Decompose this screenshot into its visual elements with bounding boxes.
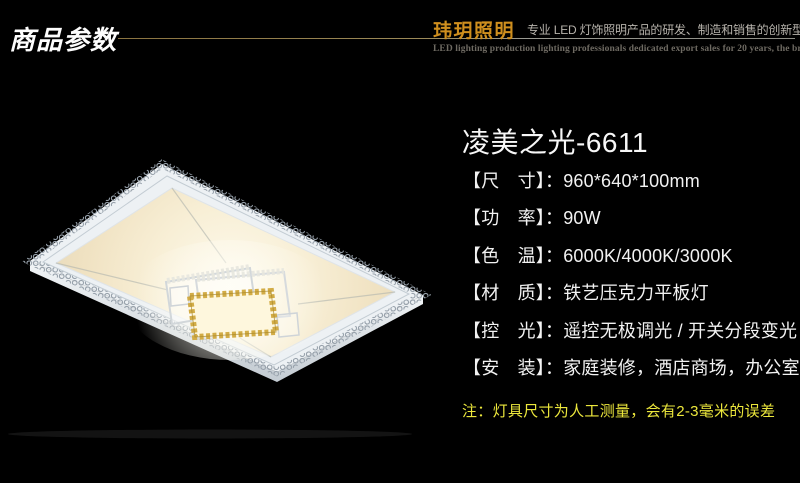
page: 商品参数 玮玥照明 专业 LED 灯饰照明产品的研发、制造和销售的创新型企业 L… bbox=[0, 0, 800, 483]
spec-row-material: 【材 质】：铁艺压克力平板灯 bbox=[463, 279, 709, 305]
spec-row-installation: 【安 装】：家庭装修，酒店商场，办公室等 bbox=[463, 354, 800, 380]
spec-row-dimming: 【控 光】：遥控无极调光 / 开关分段变光 bbox=[463, 317, 797, 343]
spec-row-color-temperature: 【色 温】：6000K/4000K/3000K bbox=[463, 242, 733, 268]
brand-slogan: 专业 LED 灯饰照明产品的研发、制造和销售的创新型企业 bbox=[527, 21, 800, 38]
product-title: 凌美之光-6611 bbox=[462, 121, 648, 161]
brand-name: 玮玥照明 bbox=[433, 16, 515, 43]
brand-slogan-english: LED lighting production lighting profess… bbox=[433, 44, 793, 54]
ceiling-lamp-illustration bbox=[0, 130, 450, 450]
product-image bbox=[0, 130, 450, 450]
spec-row-dimensions: 【尺 寸】：960*640*100mm bbox=[463, 167, 700, 193]
spec-row-power: 【功 率】：90W bbox=[463, 204, 601, 230]
product-note: 注：灯具尺寸为人工测量，会有2-3毫米的误差 bbox=[462, 400, 775, 421]
lamp-shadow bbox=[8, 430, 412, 439]
section-title: 商品参数 bbox=[9, 20, 117, 57]
